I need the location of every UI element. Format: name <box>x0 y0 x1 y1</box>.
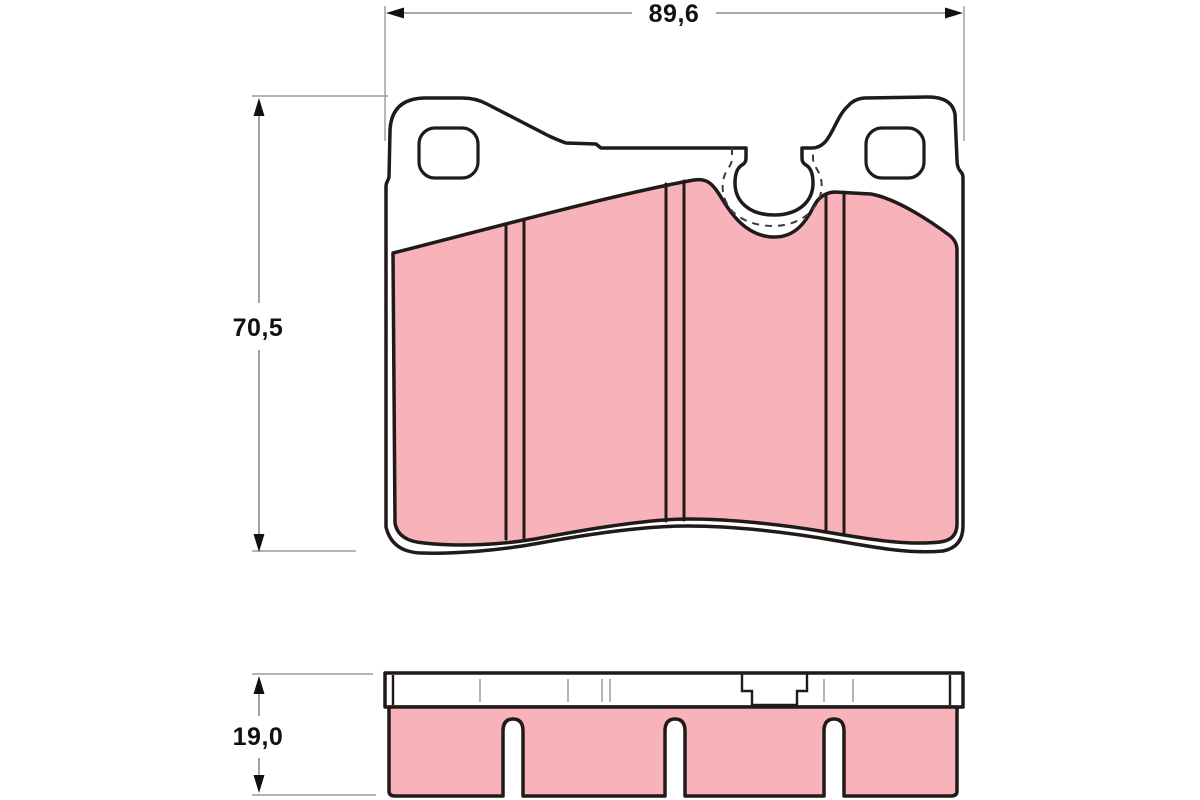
friction-material-front <box>393 180 957 545</box>
arrowhead-up <box>254 676 265 694</box>
backing-plate-side <box>385 673 963 707</box>
arrowhead-down <box>254 534 265 552</box>
height-dimension: 70,5 <box>233 96 388 552</box>
arrowhead-down <box>254 775 265 793</box>
thickness-dimension: 19,0 <box>233 674 376 795</box>
left-mounting-hole <box>419 128 478 178</box>
right-mounting-hole <box>866 128 924 178</box>
friction-material-side <box>389 707 957 796</box>
arrowhead-left <box>386 8 404 19</box>
arrowhead-up <box>254 98 265 116</box>
brake-pad-drawing: 89,6 70,5 19,0 <box>0 0 1200 800</box>
height-dimension-label: 70,5 <box>233 314 284 342</box>
front-view <box>386 97 963 553</box>
side-view <box>385 673 963 796</box>
technical-drawing-canvas: 89,6 70,5 19,0 <box>0 0 1200 800</box>
arrowhead-right <box>945 8 963 19</box>
thickness-dimension-label: 19,0 <box>233 723 284 751</box>
width-dimension-label: 89,6 <box>649 0 700 28</box>
